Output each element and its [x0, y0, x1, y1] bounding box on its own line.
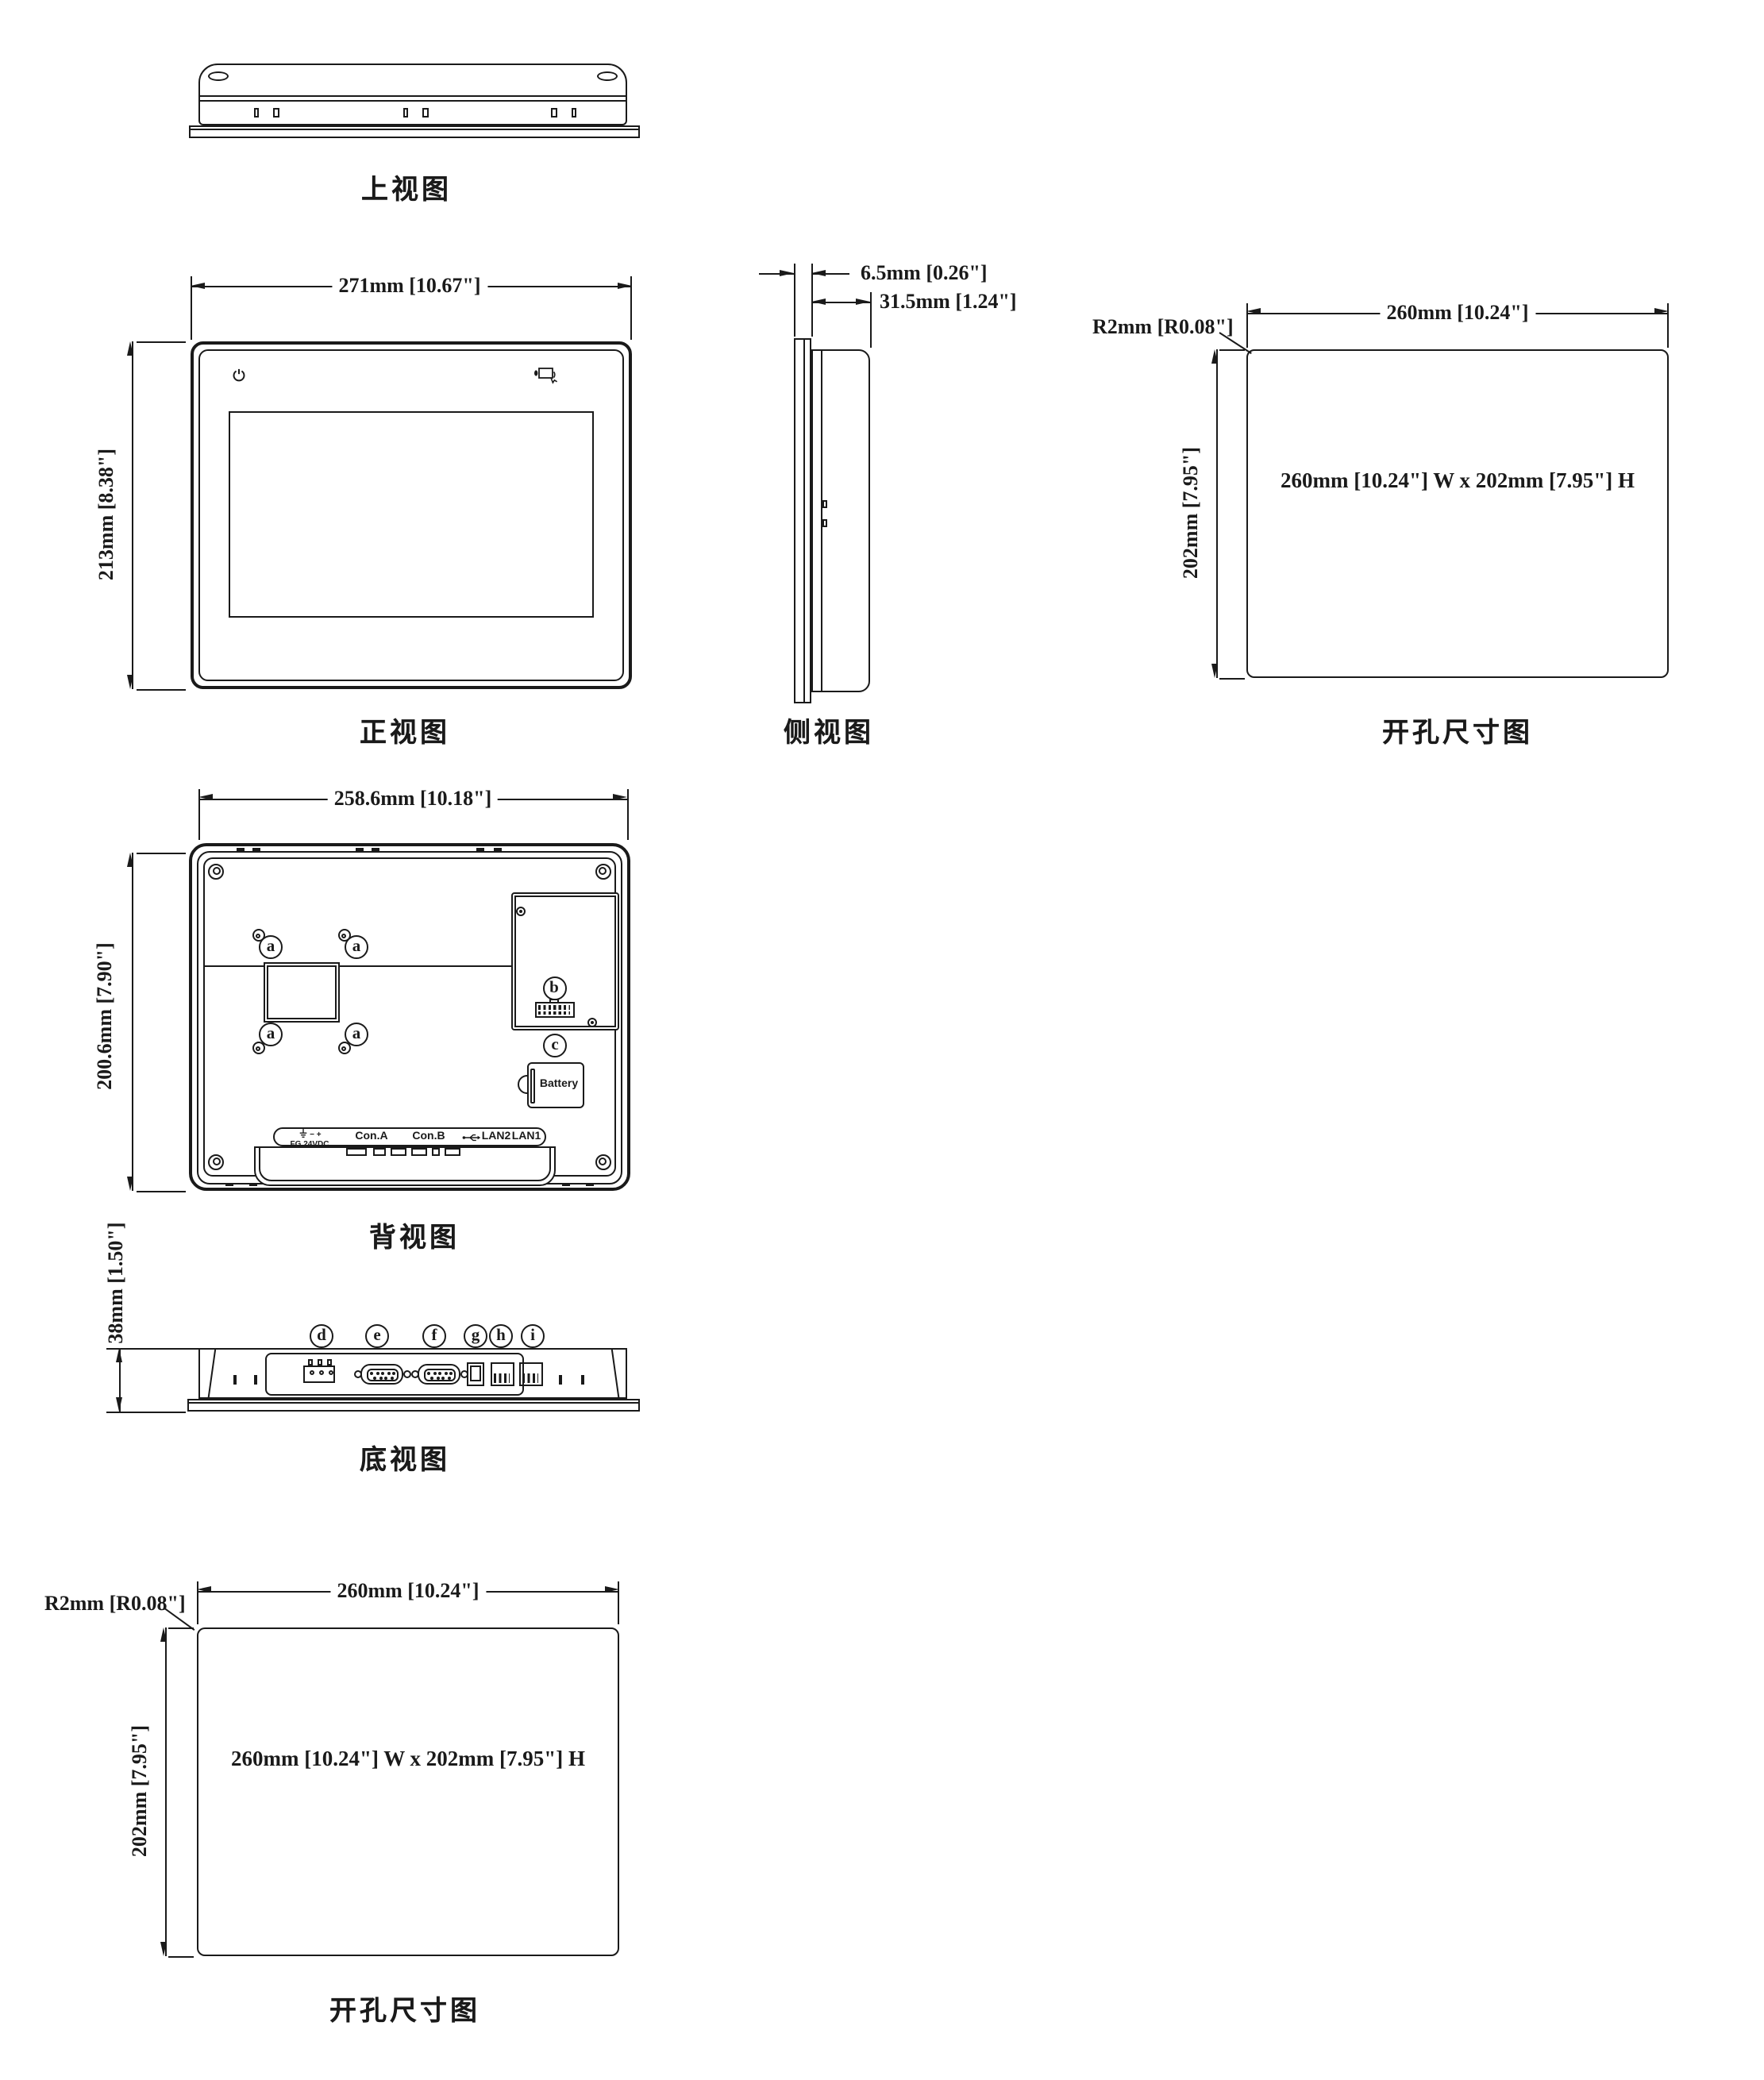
arrowhead — [197, 1586, 211, 1593]
scale-wrapper: 上视图 271mm [10.67"] 213mm [8.38"] 正视图 — [0, 0, 1764, 2080]
arrowhead — [605, 1586, 619, 1593]
extension-line — [168, 1956, 194, 1958]
arrowhead — [160, 1942, 167, 1956]
cutout-width-dimension: 260mm [10.24"] — [330, 1577, 485, 1603]
arrowhead — [160, 1627, 167, 1642]
dimension-line — [164, 1627, 166, 1956]
extension-line — [168, 1627, 194, 1629]
cutout-rectangle — [197, 1627, 619, 1956]
cutout-height-dimension: 202mm [7.95"] — [127, 1632, 152, 1950]
cutout-diagram-bottom: R2mm [R0.08"] 260mm [10.24"] 202mm [7.95… — [0, 0, 1764, 2080]
drawing-sheet: 上视图 271mm [10.67"] 213mm [8.38"] 正视图 — [0, 0, 1764, 2080]
cutout-size-note: 260mm [10.24"] W x 202mm [7.95"] H — [231, 1747, 585, 1772]
cutout-view-label: 开孔尺寸图 — [329, 1988, 480, 2028]
corner-radius-note: R2mm [R0.08"] — [44, 1591, 186, 1616]
